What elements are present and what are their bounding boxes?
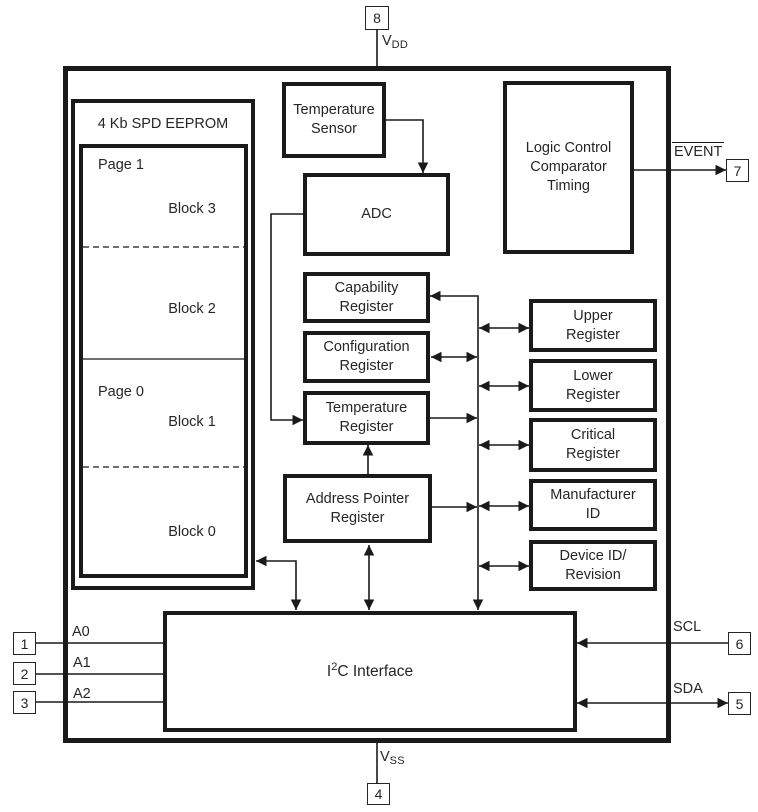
i2c-interface-label: I2C Interface — [327, 660, 413, 682]
critical-register-block: Critical Register — [529, 418, 657, 472]
pin-2: 2 — [13, 662, 36, 685]
device-id-revision-block: Device ID/ Revision — [529, 540, 657, 591]
adc-block: ADC — [303, 173, 450, 256]
lower-register-label: Lower Register — [566, 367, 620, 405]
logic-control-label: Logic Control Comparator Timing — [526, 139, 611, 196]
a1-label: A1 — [73, 655, 91, 671]
temperature-sensor-label: Temperature Sensor — [293, 101, 374, 139]
scl-label: SCL — [673, 619, 701, 635]
temperature-register-block: Temperature Register — [303, 391, 430, 445]
capability-register-label: Capability Register — [335, 279, 399, 317]
vss-label: VSS — [380, 749, 405, 767]
device-id-revision-label: Device ID/ Revision — [560, 547, 627, 585]
eeprom-title: 4 Kb SPD EEPROM — [71, 116, 255, 132]
a2-label: A2 — [73, 686, 91, 702]
capability-register-block: Capability Register — [303, 272, 430, 323]
eeprom-page1-label: Page 1 — [98, 157, 144, 173]
address-pointer-register-block: Address Pointer Register — [283, 474, 432, 543]
logic-control-block: Logic Control Comparator Timing — [503, 81, 634, 254]
i2c-interface-block: I2C Interface — [163, 611, 577, 732]
manufacturer-id-label: Manufacturer ID — [550, 486, 635, 524]
adc-label: ADC — [361, 205, 392, 224]
pin-7: 7 — [726, 159, 749, 182]
eeprom-page0-label: Page 0 — [98, 384, 144, 400]
upper-register-block: Upper Register — [529, 299, 657, 352]
configuration-register-label: Configuration Register — [323, 338, 409, 376]
eeprom-block2-label: Block 2 — [168, 301, 216, 317]
temperature-register-label: Temperature Register — [326, 399, 407, 437]
upper-register-label: Upper Register — [566, 307, 620, 345]
vdd-label: VDD — [382, 33, 408, 51]
address-pointer-register-label: Address Pointer Register — [306, 490, 409, 528]
eeprom-inner-box — [79, 144, 248, 578]
a0-label: A0 — [72, 624, 90, 640]
block-diagram: 4 Kb SPD EEPROM Page 1 Block 3 Block 2 P… — [0, 0, 758, 812]
pin-4: 4 — [367, 783, 390, 805]
manufacturer-id-block: Manufacturer ID — [529, 479, 657, 531]
pin-1: 1 — [13, 632, 36, 655]
pin-6: 6 — [728, 632, 751, 655]
event-label: EVENT — [672, 142, 724, 160]
eeprom-block0-label: Block 0 — [168, 524, 216, 540]
pin-8: 8 — [365, 6, 389, 30]
eeprom-block3-label: Block 3 — [168, 201, 216, 217]
eeprom-block1-label: Block 1 — [168, 414, 216, 430]
critical-register-label: Critical Register — [566, 426, 620, 464]
sda-label: SDA — [673, 681, 703, 697]
lower-register-block: Lower Register — [529, 359, 657, 412]
temperature-sensor-block: Temperature Sensor — [282, 82, 386, 158]
pin-3: 3 — [13, 691, 36, 714]
configuration-register-block: Configuration Register — [303, 331, 430, 383]
pin-5: 5 — [728, 692, 751, 715]
